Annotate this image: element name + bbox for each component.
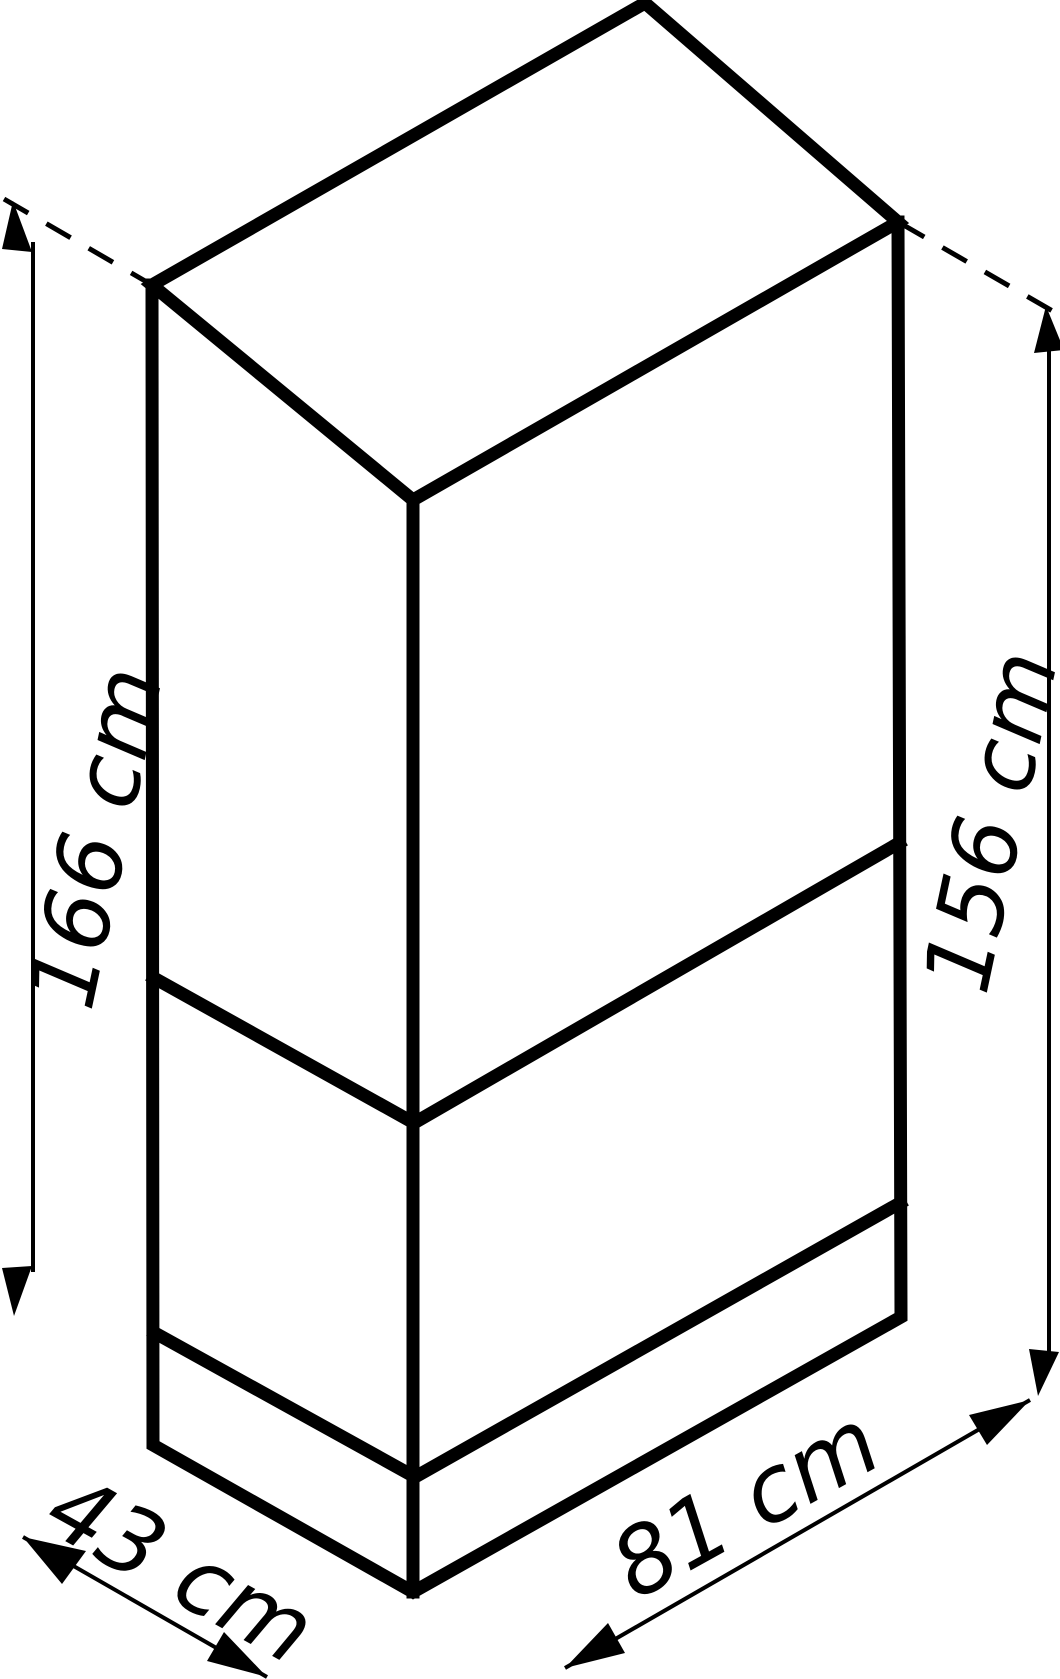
right-height-dimension: 156 cm: [900, 223, 1060, 1396]
width-label: 81 cm: [594, 1388, 896, 1620]
right-dimension-arrow-up-icon: [1034, 306, 1060, 353]
dimension-diagram-canvas: 166 cm 156 cm 43 cm 81 cm: [0, 0, 1060, 1679]
width-dimension: 81 cm: [565, 1388, 1030, 1668]
right-dimension-arrow-down-icon: [1029, 1349, 1059, 1396]
width-arrow-downleft-icon: [565, 1623, 625, 1668]
left-dimension-arrow-down-icon: [2, 1266, 32, 1316]
right-height-label: 156 cm: [903, 642, 1060, 1002]
width-arrow-upright-icon: [969, 1400, 1030, 1445]
box-middle-rail: [154, 843, 899, 1123]
box-top-face: [152, 3, 898, 500]
dimension-diagram: 166 cm 156 cm 43 cm 81 cm: [0, 0, 1060, 1679]
right-dashed-leader: [900, 223, 1056, 313]
depth-label: 43 cm: [29, 1453, 331, 1679]
depth-dimension: 43 cm: [23, 1453, 332, 1679]
box: [152, 3, 901, 1592]
